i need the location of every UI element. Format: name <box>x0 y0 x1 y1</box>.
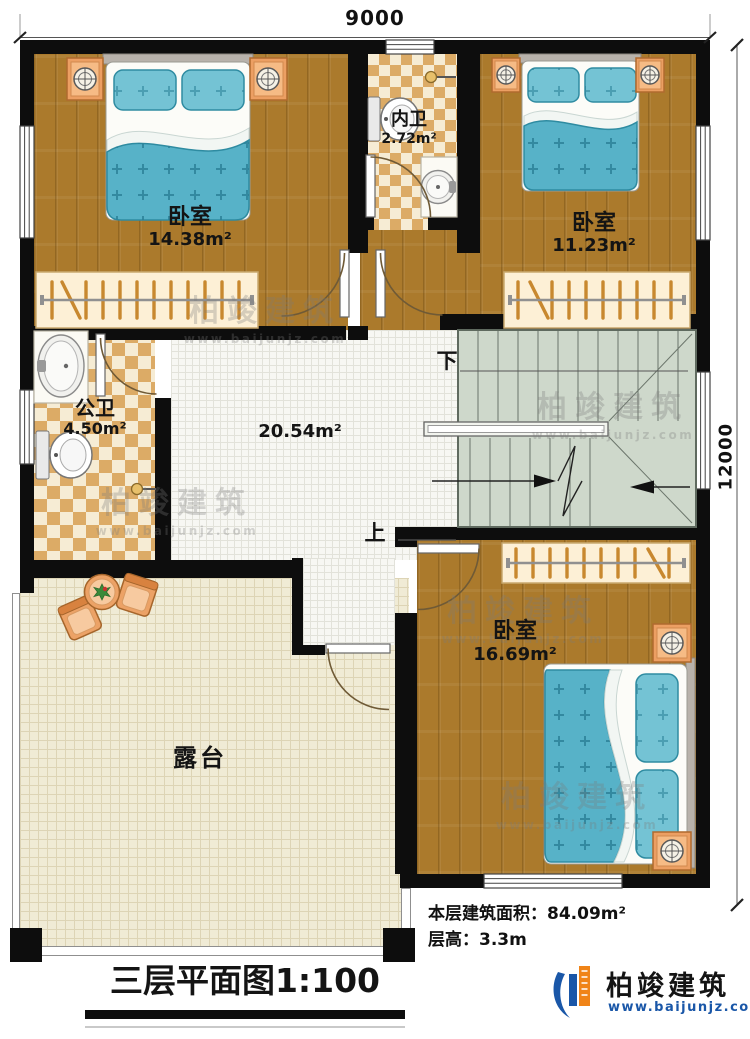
wall-terrace-top <box>20 560 303 578</box>
title-underline-thin <box>85 1026 405 1028</box>
wall-innerbath-right <box>457 54 480 253</box>
terrace-column-left <box>10 928 42 962</box>
wall-bedroom1-right <box>348 54 368 253</box>
wall-outer-right <box>696 40 710 888</box>
bedroom3-floor <box>417 540 696 874</box>
wall-publicbath-right-a <box>155 330 171 338</box>
wall-bedroom3-left-a <box>395 540 417 547</box>
plan-title: 三层平面图1:100 <box>80 964 410 999</box>
terrace-parapet-bottom <box>12 946 411 956</box>
brand-logo-icon <box>554 966 590 1018</box>
public-bath-floor <box>34 330 155 560</box>
wall-bedroom3-bottom <box>400 874 710 888</box>
inner-bath-label: 内卫 <box>369 111 449 130</box>
wall-bedroom1-right-stub <box>348 326 368 340</box>
wall-bedroom3-left-b <box>395 613 417 874</box>
wall-innerbath-bottom-b <box>428 215 457 230</box>
terrace-column-right <box>383 928 415 962</box>
wall-terrace-door-stub <box>292 645 325 655</box>
bedroom2-area: 11.23m² <box>524 237 664 256</box>
hall-area: 20.54m² <box>230 423 370 442</box>
bedroom2-floor <box>480 54 696 314</box>
bedroom1-area: 14.38m² <box>120 231 260 250</box>
dimension-height: 12000 <box>716 427 737 491</box>
dimension-width: 9000 <box>305 6 445 30</box>
public-bath-area: 4.50m² <box>40 421 150 438</box>
stairs-floor <box>458 330 696 527</box>
bedroom1-label: 卧室 <box>130 206 250 229</box>
hall-corridor-floor <box>303 558 395 645</box>
wall-outer-top <box>20 40 710 54</box>
bedroom3-label: 卧室 <box>455 620 575 643</box>
wall-hall-top-left <box>20 326 346 340</box>
floor-area-note: 本层建筑面积：84.09m² <box>428 899 626 924</box>
wall-publicbath-right-b <box>155 398 171 560</box>
wall-corridor-left <box>292 558 303 653</box>
bedroom3-area: 16.69m² <box>445 646 585 665</box>
floor-height-note: 层高：3.3m <box>428 925 527 950</box>
brand-url: www.baijunjz.com <box>608 1000 750 1015</box>
wall-bedroom3-top <box>395 527 710 540</box>
wall-hall-top-right <box>440 314 710 330</box>
wall-outer-left <box>20 40 34 593</box>
hall-floor <box>171 330 458 560</box>
floor-plan: 柏竣建筑 www.baijunjz.com 柏竣建筑 www.baijunjz.… <box>0 0 750 1039</box>
brand-name: 柏竣建筑 <box>606 964 730 1003</box>
terrace-label: 露台 <box>140 746 260 771</box>
inner-bath-area: 2.72m² <box>369 132 449 147</box>
stairs-down-label: 下 <box>432 350 462 372</box>
public-bath-label: 公卫 <box>45 398 145 419</box>
bedroom2-label: 卧室 <box>534 212 654 235</box>
title-underline <box>85 1010 405 1019</box>
terrace-parapet-left <box>12 593 20 954</box>
wall-innerbath-bottom-a <box>368 215 374 230</box>
stairs-up-label: 上 <box>360 522 390 544</box>
bedroom1-floor <box>34 54 348 340</box>
